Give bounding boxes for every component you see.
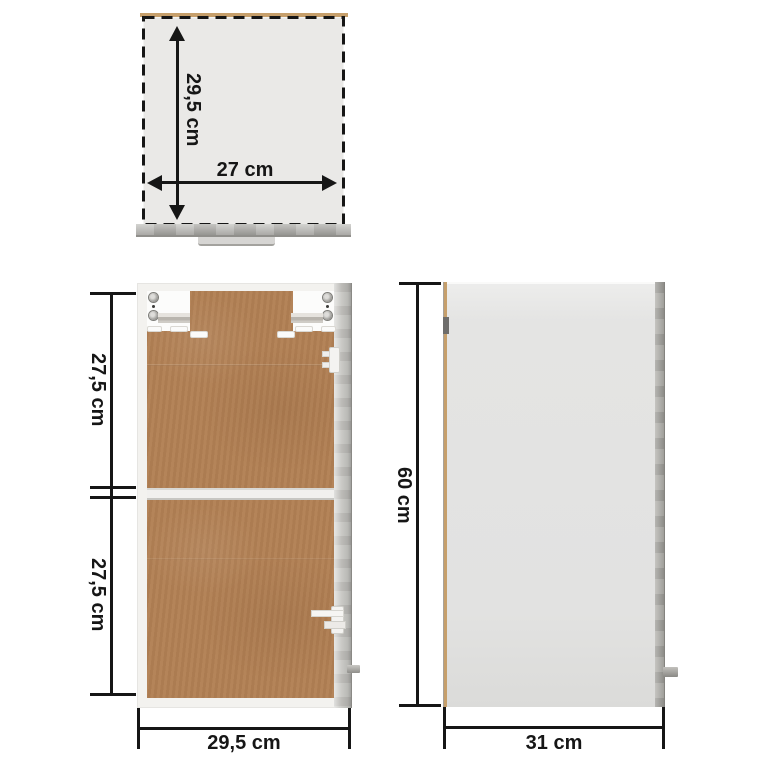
back-panel-lower-seam <box>147 558 334 560</box>
bracket-pin-right <box>326 305 329 308</box>
front-width-label: 29,5 cm <box>137 733 351 753</box>
hinge-lower-arm-1 <box>311 610 344 617</box>
front-dim-tick-mid-upper <box>90 486 136 489</box>
bracket-slot-right-3 <box>277 331 295 338</box>
front-dim-tick-bottom <box>90 693 136 696</box>
hinge-upper <box>329 347 340 373</box>
side-view-door-edge-strip <box>655 282 665 707</box>
bracket-rail-right <box>291 313 323 323</box>
front-dim-tick-top <box>90 292 136 295</box>
side-height-tick-top <box>399 282 441 285</box>
bracket-slot-left-2 <box>170 326 188 332</box>
side-view-wall-bracket <box>443 317 449 334</box>
side-view-handle <box>663 667 678 677</box>
front-upper-section-label: 27,5 cm <box>84 300 108 480</box>
side-height-tick-bottom <box>399 704 441 707</box>
shelf <box>147 488 334 500</box>
side-height-dim-line <box>416 283 419 707</box>
side-depth-dim-line <box>443 726 665 729</box>
bracket-slot-left-1 <box>147 326 162 332</box>
back-panel-lower <box>147 500 334 698</box>
bracket-screw-left-1 <box>149 293 158 302</box>
side-height-label: 60 cm <box>390 400 414 590</box>
hinge-upper-tab-1 <box>322 351 330 357</box>
bracket-slot-left-3 <box>190 331 208 338</box>
side-view-wood-edge <box>444 282 447 707</box>
bracket-slot-right-1 <box>321 326 336 332</box>
bracket-slot-right-2 <box>295 326 313 332</box>
hinge-lower-arm-2 <box>324 621 346 629</box>
bracket-screw-right-2 <box>323 311 332 320</box>
front-width-dim-line <box>137 727 351 730</box>
side-depth-label: 31 cm <box>443 733 665 753</box>
product-dimension-diagram: 29,5 cm 27 cm <box>0 0 767 767</box>
front-lower-section-label: 27,5 cm <box>84 505 108 685</box>
bracket-screw-left-2 <box>149 311 158 320</box>
bracket-screw-right-1 <box>323 293 332 302</box>
front-dim-tick-mid-lower <box>90 496 136 499</box>
back-panel-upper-seam <box>147 364 334 366</box>
bracket-pin-left <box>152 305 155 308</box>
front-dim-vline <box>110 293 113 696</box>
hinge-upper-tab-2 <box>322 362 330 368</box>
bracket-rail-left <box>158 313 190 323</box>
front-view-handle-nub <box>347 665 360 673</box>
side-view-panel <box>443 282 665 707</box>
